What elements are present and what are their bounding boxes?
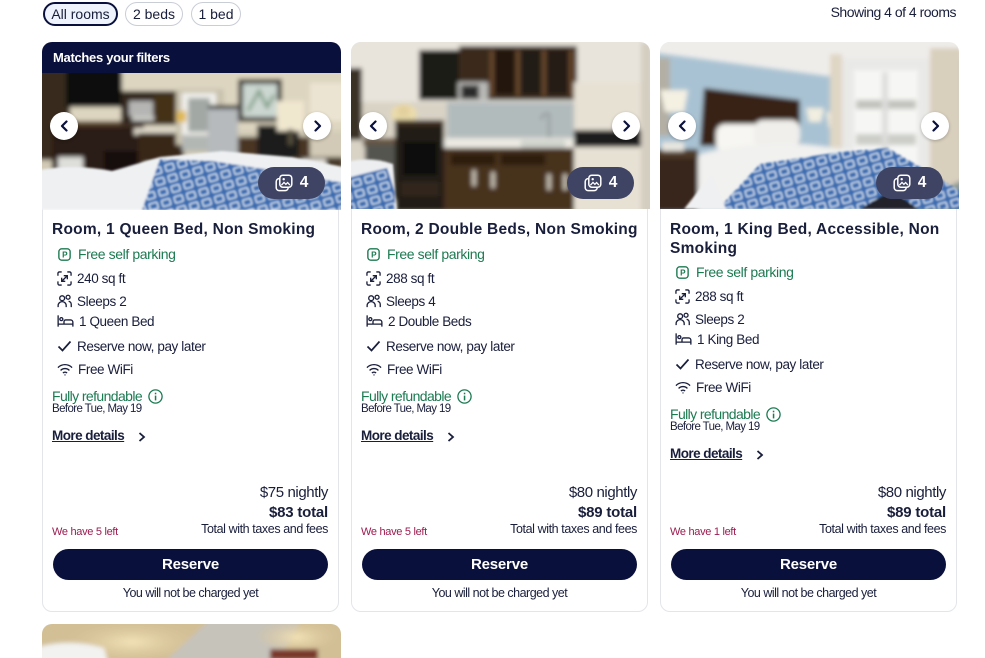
svg-text:P: P: [371, 250, 377, 259]
svg-text:P: P: [680, 268, 686, 277]
svg-text:P: P: [62, 250, 68, 259]
